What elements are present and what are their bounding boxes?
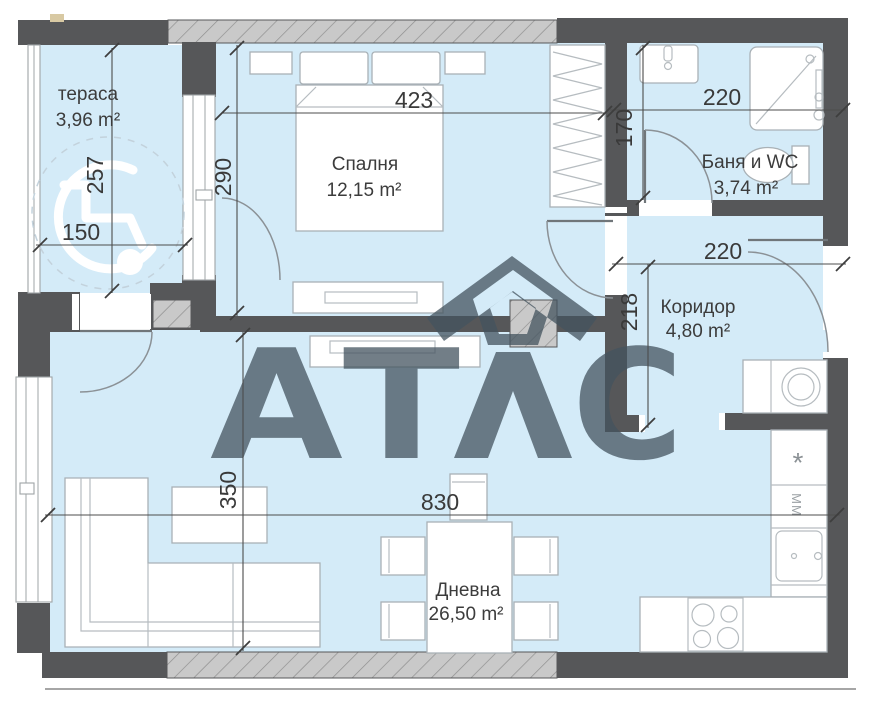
wall-bottom-left: [42, 652, 167, 678]
cap-bath-door-right: [706, 200, 712, 216]
nightstand-left: [250, 52, 292, 74]
dining-chair: [514, 602, 558, 640]
dining-chair: [381, 602, 425, 640]
wall-top-right: [557, 18, 848, 43]
bathroom-sink: [640, 45, 698, 83]
wall-marker: [50, 14, 64, 22]
dim-label-terrace-width: 150: [62, 219, 100, 245]
dim-label-living-depth: 350: [215, 471, 241, 509]
wall-right-upper: [823, 18, 848, 252]
wall-terrace-window-top: [182, 42, 216, 97]
wall-kitchen-divider: [725, 413, 827, 430]
room-area-bedroom: 12,15 m²: [327, 180, 402, 201]
room-label-corridor: Коридор: [660, 297, 735, 318]
watermark-text-right: С: [572, 317, 684, 494]
dim-label-bathroom-depth: 170: [611, 109, 637, 147]
tv-cabinet-bedroom: [293, 282, 443, 313]
column-hatched-terrace: [153, 300, 191, 328]
watermark-text-left: АТ: [210, 317, 460, 494]
dim-label-terrace-depth: 257: [82, 156, 108, 194]
dim-label-corridor-depth: 218: [616, 293, 642, 331]
room-label-bathroom: Баня и WC: [702, 152, 799, 173]
microwave-label: MM: [789, 493, 804, 517]
dim-label-living-width: 830: [421, 489, 459, 515]
dim-label-corridor-width: 220: [704, 238, 742, 264]
room-area-terrace: 3,96 m²: [56, 110, 120, 131]
wall-terrace-top: [18, 20, 168, 45]
room-label-bedroom: Спалня: [332, 154, 398, 175]
room-area-living: 26,50 m²: [429, 604, 504, 625]
dim-label-bedroom-depth: 290: [210, 158, 236, 196]
cap-terrace-door-left: [72, 294, 79, 330]
room-area-corridor: 4,80 m²: [666, 321, 730, 342]
cap-entrance-bottom: [823, 352, 848, 358]
wall-bathroom-bottom: [712, 200, 828, 216]
window-mullion: [20, 483, 34, 494]
room-area-bathroom: 3,74 m²: [714, 178, 778, 199]
pillow-right: [372, 52, 440, 84]
floor-plan: * MM: [0, 0, 870, 702]
wall-hatched-top: [168, 20, 557, 43]
dim-label-bedroom-width: 423: [395, 87, 433, 113]
dim-label-bathroom-width: 220: [703, 84, 741, 110]
floor-plan-page: * MM: [0, 0, 870, 702]
cap-entrance-top: [823, 246, 848, 252]
cap-bedroom-door-top: [605, 207, 627, 213]
wall-hatched-bottom: [167, 652, 557, 678]
nightstand-right: [445, 52, 485, 74]
freezer-symbol: *: [793, 447, 804, 478]
cap-terrace-door-right: [145, 294, 151, 329]
dining-chair: [514, 537, 558, 575]
wall-left-corner: [17, 603, 50, 653]
pillow-left: [300, 52, 368, 84]
wall-terrace-living: [18, 292, 80, 332]
cap-passage-right: [719, 413, 725, 430]
room-label-living: Дневна: [435, 580, 501, 601]
dining-chair: [381, 537, 425, 575]
kitchen-bottom-counter: [640, 597, 827, 652]
room-label-terrace: тераса: [58, 84, 119, 105]
wall-bottom-right: [557, 652, 848, 678]
